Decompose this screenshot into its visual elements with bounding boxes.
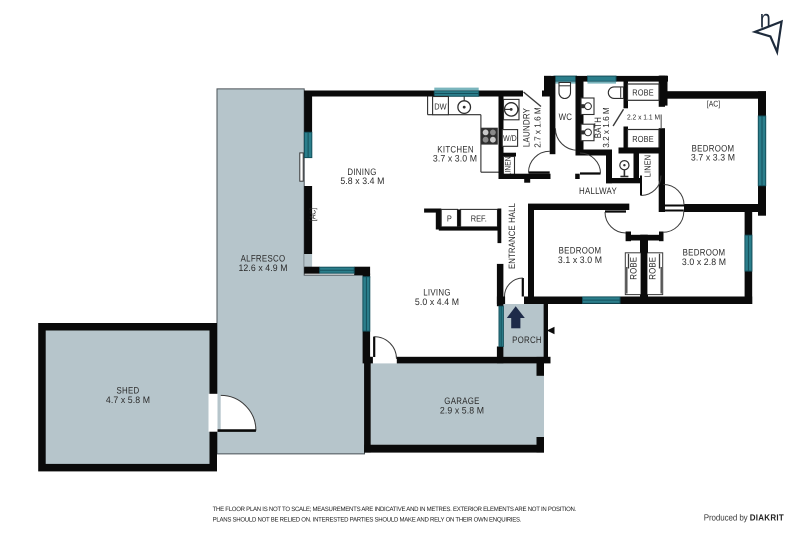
svg-text:[AC]: [AC] — [707, 99, 720, 108]
svg-text:REF.: REF. — [471, 214, 487, 224]
svg-text:3.7 x 3.0 M: 3.7 x 3.0 M — [433, 152, 477, 163]
svg-text:5.8 x 3.4 M: 5.8 x 3.4 M — [340, 175, 384, 186]
svg-text:LINEN: LINEN — [504, 156, 513, 176]
svg-text:3.1 x 3.0 M: 3.1 x 3.0 M — [558, 254, 602, 265]
svg-text:DW: DW — [434, 101, 447, 111]
svg-text:LAUNDRY: LAUNDRY — [521, 107, 532, 147]
svg-text:W/D: W/D — [503, 133, 517, 143]
svg-text:LINEN: LINEN — [643, 155, 653, 178]
svg-text:Produced by DIAKRIT: Produced by DIAKRIT — [704, 512, 785, 522]
svg-text:3.7 x 3.3 M: 3.7 x 3.3 M — [691, 152, 735, 163]
svg-text:P: P — [447, 214, 452, 224]
svg-text:ROBE: ROBE — [632, 88, 654, 98]
svg-text:4.7 x 5.8 M: 4.7 x 5.8 M — [106, 394, 150, 405]
svg-text:WC: WC — [559, 111, 572, 122]
svg-text:ROBE: ROBE — [648, 257, 658, 280]
svg-text:[AC]: [AC] — [309, 208, 318, 221]
svg-text:5.0 x 4.4 M: 5.0 x 4.4 M — [415, 296, 459, 307]
svg-text:12.6 x 4.9 M: 12.6 x 4.9 M — [238, 262, 287, 273]
svg-text:2.2 x 1.1 M: 2.2 x 1.1 M — [627, 112, 660, 121]
svg-text:2.9 x 5.8 M: 2.9 x 5.8 M — [440, 405, 484, 416]
svg-text:PORCH: PORCH — [512, 334, 542, 345]
svg-text:ROBE: ROBE — [632, 134, 654, 144]
svg-text:ENTRANCE HALL: ENTRANCE HALL — [507, 203, 517, 269]
svg-text:3.0 x 2.8 M: 3.0 x 2.8 M — [682, 256, 726, 267]
svg-text:THE FLOOR PLAN IS NOT TO SCALE: THE FLOOR PLAN IS NOT TO SCALE; MEASUREM… — [213, 506, 577, 513]
svg-text:PLANS SHOULD NOT BE RELIED ON.: PLANS SHOULD NOT BE RELIED ON. INTERESTE… — [213, 516, 522, 523]
svg-text:2.7 x 1.6 M: 2.7 x 1.6 M — [533, 107, 543, 147]
svg-text:3.2 x 1.6 M: 3.2 x 1.6 M — [601, 107, 611, 147]
svg-text:HALLWAY: HALLWAY — [579, 185, 617, 196]
svg-text:ROBE: ROBE — [628, 257, 638, 280]
